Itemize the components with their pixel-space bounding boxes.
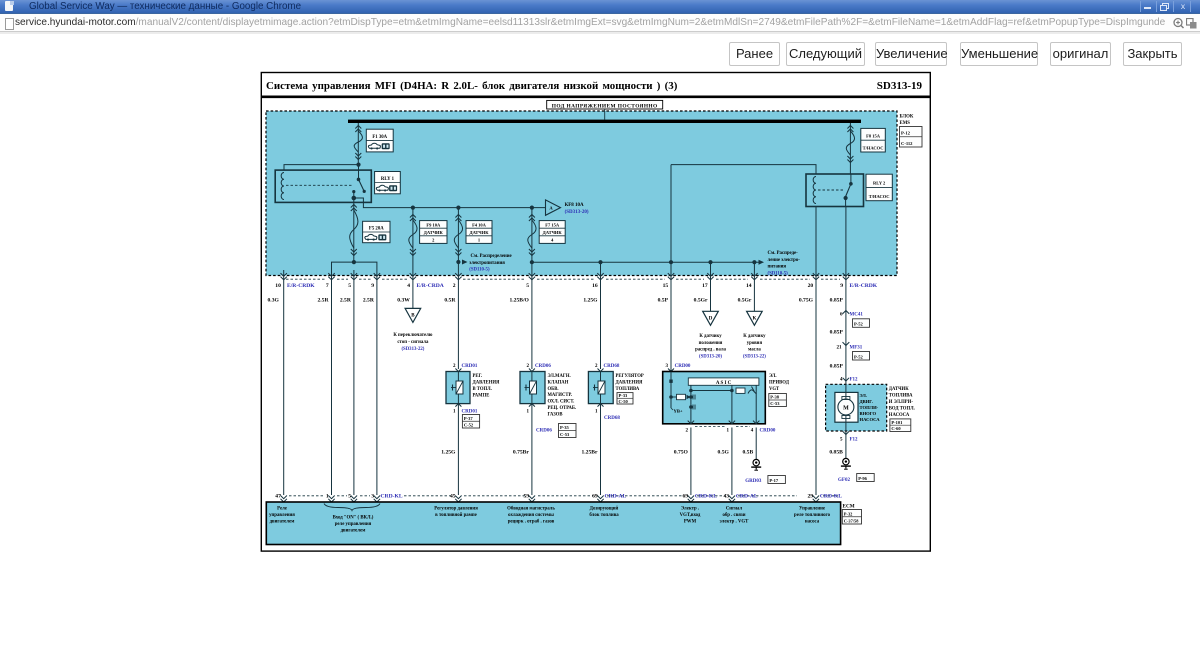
svg-text:VGT: VGT: [769, 387, 780, 392]
svg-text:9: 9: [840, 283, 843, 289]
svg-text:ВОД ТОПЛ.: ВОД ТОПЛ.: [889, 407, 915, 412]
svg-text:4: 4: [407, 283, 410, 289]
svg-text:ВНОГО: ВНОГО: [860, 411, 877, 416]
svg-text:P-35: P-35: [560, 425, 569, 430]
svg-text:CRD00: CRD00: [760, 428, 776, 433]
svg-text:Сигнал: Сигнал: [726, 507, 743, 512]
svg-text:(SD110-5): (SD110-5): [469, 268, 490, 273]
svg-text:0.85P: 0.85P: [830, 364, 844, 370]
svg-text:электропитания: электропитания: [469, 261, 505, 266]
svg-text:РЕЦ. ОТРАБ.: РЕЦ. ОТРАБ.: [548, 406, 577, 411]
svg-text:47: 47: [275, 493, 281, 499]
svg-text:ДАВЛЕНИЯ: ДАВЛЕНИЯ: [473, 381, 500, 386]
svg-text:Электр .: Электр .: [681, 507, 699, 512]
svg-text:P-101: P-101: [891, 420, 903, 425]
svg-text:3: 3: [371, 493, 374, 499]
svg-text:16: 16: [592, 283, 598, 289]
svg-text:10: 10: [275, 283, 281, 289]
svg-text:Обводная магистраль: Обводная магистраль: [507, 507, 555, 512]
svg-text:РЕГУЛЯТОР: РЕГУЛЯТОР: [616, 374, 644, 379]
svg-text:15: 15: [663, 283, 669, 289]
svg-text:CRD-AL: CRD-AL: [736, 493, 758, 499]
svg-text:К датчику: К датчику: [743, 334, 766, 339]
svg-text:P-17: P-17: [769, 478, 778, 483]
svg-text:КЛАПАН: КЛАПАН: [548, 380, 569, 385]
svg-text:F1 30A: F1 30A: [372, 135, 387, 140]
svg-text:0.5Gr: 0.5Gr: [738, 298, 752, 304]
svg-text:21: 21: [837, 346, 843, 351]
svg-text:РЕГ.: РЕГ.: [473, 374, 483, 379]
svg-text:двигателем: двигателем: [270, 520, 296, 525]
svg-text:См. Распреде-: См. Распреде-: [768, 251, 799, 256]
svg-text:0.85P: 0.85P: [830, 330, 844, 336]
svg-text:Дозирующий: Дозирующий: [590, 507, 619, 512]
svg-text:C-53: C-53: [560, 432, 570, 437]
svg-text:К датчику: К датчику: [699, 334, 722, 339]
svg-text:MC41: MC41: [850, 313, 864, 318]
svg-text:45: 45: [450, 493, 456, 499]
svg-text:Управление: Управление: [799, 507, 825, 512]
svg-text:питания: питания: [768, 265, 787, 270]
svg-text:C-37/58: C-37/58: [844, 519, 859, 524]
svg-text:C-50: C-50: [619, 399, 629, 404]
svg-text:CRD06: CRD06: [535, 364, 551, 369]
svg-text:VGT,вход: VGT,вход: [680, 513, 701, 518]
svg-text:(SD313-20): (SD313-20): [565, 210, 589, 215]
svg-text:0.5G: 0.5G: [718, 450, 730, 456]
svg-text:(SD110-5): (SD110-5): [768, 271, 789, 276]
svg-text:ECM: ECM: [843, 504, 855, 510]
svg-text:C-60: C-60: [891, 426, 901, 431]
svg-text:ЭЛ.МАГН.: ЭЛ.МАГН.: [548, 374, 571, 379]
svg-text:2.5R: 2.5R: [340, 298, 352, 304]
svg-text:масла: масла: [748, 348, 761, 353]
svg-text:распред . вала: распред . вала: [695, 348, 726, 353]
svg-text:ДВИГ.: ДВИГ.: [860, 399, 873, 404]
svg-text:0.3G: 0.3G: [268, 298, 280, 304]
svg-text:0.85B: 0.85B: [829, 450, 843, 456]
svg-text:YB+: YB+: [674, 409, 683, 414]
svg-text:GF02: GF02: [838, 478, 850, 483]
svg-text:GRD03: GRD03: [745, 479, 762, 484]
svg-text:43: 43: [724, 493, 730, 499]
svg-text:1: 1: [326, 493, 329, 499]
svg-text:CRD-KL: CRD-KL: [695, 493, 717, 499]
svg-text:ДАТЧИК: ДАТЧИК: [543, 230, 563, 235]
svg-text:PWM: PWM: [684, 520, 697, 525]
svg-text:F9 10A: F9 10A: [426, 223, 441, 228]
svg-text:29: 29: [808, 493, 814, 499]
svg-text:20: 20: [808, 283, 814, 289]
svg-text:положения: положения: [699, 341, 723, 346]
svg-text:F7 15A: F7 15A: [545, 223, 560, 228]
svg-text:5: 5: [348, 493, 351, 499]
svg-text:17: 17: [702, 283, 708, 289]
svg-text:ДАВЛЕНИЯ: ДАВЛЕНИЯ: [616, 381, 643, 386]
svg-text:МАГИСТР.: МАГИСТР.: [548, 393, 572, 398]
svg-text:0.3W: 0.3W: [397, 298, 410, 304]
svg-text:Т/НАСОС: Т/НАСОС: [863, 145, 884, 150]
svg-text:CRD68: CRD68: [604, 364, 620, 369]
svg-text:Вход "ON" ( ВКЛ.): Вход "ON" ( ВКЛ.): [333, 516, 374, 521]
svg-text:P-33: P-33: [619, 393, 628, 398]
svg-text:в топливной рампе: в топливной рампе: [435, 513, 477, 518]
svg-text:RLY 1: RLY 1: [381, 177, 395, 182]
svg-text:уровня: уровня: [747, 341, 763, 346]
svg-text:Т/НАСОС: Т/НАСОС: [869, 194, 890, 199]
svg-text:Регулятор давления: Регулятор давления: [434, 507, 478, 512]
svg-text:CRD-KL: CRD-KL: [381, 493, 403, 499]
svg-text:MF31: MF31: [850, 346, 863, 351]
svg-text:CRD06: CRD06: [536, 429, 552, 434]
svg-text:59: 59: [524, 493, 530, 499]
svg-text:F4 10A: F4 10A: [472, 223, 487, 228]
svg-text:ление электро-: ление электро-: [768, 258, 801, 263]
svg-text:P-38: P-38: [770, 395, 779, 400]
svg-text:2.5R: 2.5R: [317, 298, 329, 304]
svg-text:SD313-19: SD313-19: [877, 80, 923, 92]
svg-text:0.5Gr: 0.5Gr: [694, 298, 708, 304]
svg-text:E/R-CRDA: E/R-CRDA: [417, 283, 444, 289]
svg-text:0.75O: 0.75O: [674, 450, 689, 456]
svg-text:ДАТЧИК: ДАТЧИК: [469, 230, 489, 235]
svg-text:Система управления MFI (D4HA:: Система управления MFI (D4HA: R 2.0L- бл…: [266, 80, 678, 92]
svg-text:2.5R: 2.5R: [363, 298, 375, 304]
svg-text:насоса: насоса: [805, 520, 820, 525]
svg-text:1.25G: 1.25G: [583, 298, 598, 304]
svg-text:69: 69: [592, 493, 598, 499]
svg-text:M: M: [843, 406, 849, 412]
svg-text:1.25Br: 1.25Br: [581, 450, 598, 456]
svg-text:ДАТЧИК: ДАТЧИК: [889, 387, 909, 392]
svg-text:EMS: EMS: [900, 121, 911, 126]
svg-text:И ЭЛ.ПРИ-: И ЭЛ.ПРИ-: [889, 400, 914, 405]
svg-text:НАСОСА: НАСОСА: [860, 417, 881, 422]
svg-text:0.75Br: 0.75Br: [513, 450, 530, 456]
svg-text:P-37: P-37: [464, 416, 473, 421]
svg-text:C-112: C-112: [901, 141, 913, 146]
svg-text:C-53: C-53: [770, 401, 780, 406]
svg-text:E/R-CRDK: E/R-CRDK: [287, 283, 315, 289]
svg-text:F12: F12: [850, 438, 859, 443]
svg-text:ТОПЛИВА: ТОПЛИВА: [889, 394, 913, 399]
svg-text:стоп - сигнала: стоп - сигнала: [397, 340, 429, 345]
svg-text:обр . связи: обр . связи: [722, 513, 745, 518]
svg-text:электр . VGT: электр . VGT: [720, 520, 749, 525]
svg-text:ПОД НАПРЯЖЕНИЕМ ПОСТОЯННО: ПОД НАПРЯЖЕНИЕМ ПОСТОЯННО: [552, 103, 658, 109]
svg-text:ЭЛ.: ЭЛ.: [860, 393, 867, 398]
svg-text:A S I C: A S I C: [716, 381, 732, 386]
svg-text:РАМПЕ: РАМПЕ: [473, 394, 490, 399]
svg-text:CRD-KL: CRD-KL: [820, 493, 842, 499]
svg-text:5: 5: [348, 283, 351, 289]
svg-text:F12: F12: [850, 378, 859, 383]
svg-text:CRD00: CRD00: [675, 364, 691, 369]
svg-text:CRD01: CRD01: [462, 410, 478, 415]
svg-text:(SD313-22): (SD313-22): [743, 355, 766, 360]
svg-text:0.5B: 0.5B: [742, 450, 753, 456]
svg-text:ГАЗОВ: ГАЗОВ: [548, 412, 563, 417]
svg-text:C-52: C-52: [464, 423, 474, 428]
svg-text:реле топливного: реле топливного: [794, 513, 831, 518]
svg-text:D: D: [709, 316, 713, 321]
svg-text:(SD313-22): (SD313-22): [401, 347, 424, 352]
svg-text:ДАТЧИК: ДАТЧИК: [424, 230, 444, 235]
svg-text:ТОПЛИ-: ТОПЛИ-: [860, 405, 879, 410]
svg-text:ПРИВОД: ПРИВОД: [769, 381, 790, 386]
svg-text:CRD68: CRD68: [604, 416, 620, 421]
svg-text:ОБВ.: ОБВ.: [548, 387, 559, 392]
svg-text:рецирк . отраб . газов: рецирк . отраб . газов: [508, 520, 555, 525]
svg-text:(SD313-20): (SD313-20): [699, 355, 722, 360]
svg-text:14: 14: [746, 283, 752, 289]
svg-text:CRD01: CRD01: [462, 364, 478, 369]
svg-text:В ТОПЛ.: В ТОПЛ.: [473, 387, 492, 392]
svg-text:0.5P: 0.5P: [658, 298, 669, 304]
svg-text:двигателем: двигателем: [341, 529, 367, 534]
svg-text:К переключателю: К переключателю: [393, 333, 432, 338]
svg-text:7: 7: [326, 283, 329, 289]
svg-text:блок топлива: блок топлива: [589, 513, 619, 518]
svg-text:P-32: P-32: [844, 511, 853, 516]
svg-text:ОХЛ. СИСТ.: ОХЛ. СИСТ.: [548, 400, 575, 405]
svg-text:K: K: [752, 316, 756, 321]
svg-text:F5 20A: F5 20A: [369, 227, 384, 232]
svg-text:реле управления: реле управления: [335, 522, 372, 527]
svg-text:1.25G: 1.25G: [441, 450, 456, 456]
svg-text:БЛОК: БЛОК: [900, 115, 914, 120]
svg-text:0.85P: 0.85P: [830, 298, 844, 304]
svg-text:Реле: Реле: [277, 507, 287, 512]
svg-text:ТОПЛИВА: ТОПЛИВА: [616, 387, 640, 392]
svg-text:охлаждения системы: охлаждения системы: [508, 513, 554, 518]
svg-text:69: 69: [683, 493, 689, 499]
svg-text:E/R-CRDK: E/R-CRDK: [850, 283, 878, 289]
svg-text:0.5R: 0.5R: [444, 298, 456, 304]
svg-text:P-52: P-52: [854, 322, 863, 327]
svg-text:КF8 10A: КF8 10A: [565, 203, 584, 208]
svg-text:ЭЛ.: ЭЛ.: [769, 374, 777, 379]
svg-text:F8 15A: F8 15A: [866, 134, 881, 139]
svg-text:P-96: P-96: [858, 476, 867, 481]
svg-text:1.25B/O: 1.25B/O: [509, 298, 529, 304]
svg-text:P-12: P-12: [901, 131, 911, 136]
svg-text:НАСОСА: НАСОСА: [889, 413, 910, 418]
svg-text:CRD-AL: CRD-AL: [605, 493, 627, 499]
svg-text:P-52: P-52: [854, 354, 863, 359]
svg-text:RLY 2: RLY 2: [873, 181, 886, 186]
svg-text:5: 5: [526, 283, 529, 289]
svg-text:См. Распределение: См. Распределение: [471, 254, 512, 259]
svg-text:управления: управления: [269, 513, 295, 518]
svg-text:0.75G: 0.75G: [799, 298, 814, 304]
svg-text:9: 9: [371, 283, 374, 289]
svg-text:2: 2: [453, 283, 456, 289]
